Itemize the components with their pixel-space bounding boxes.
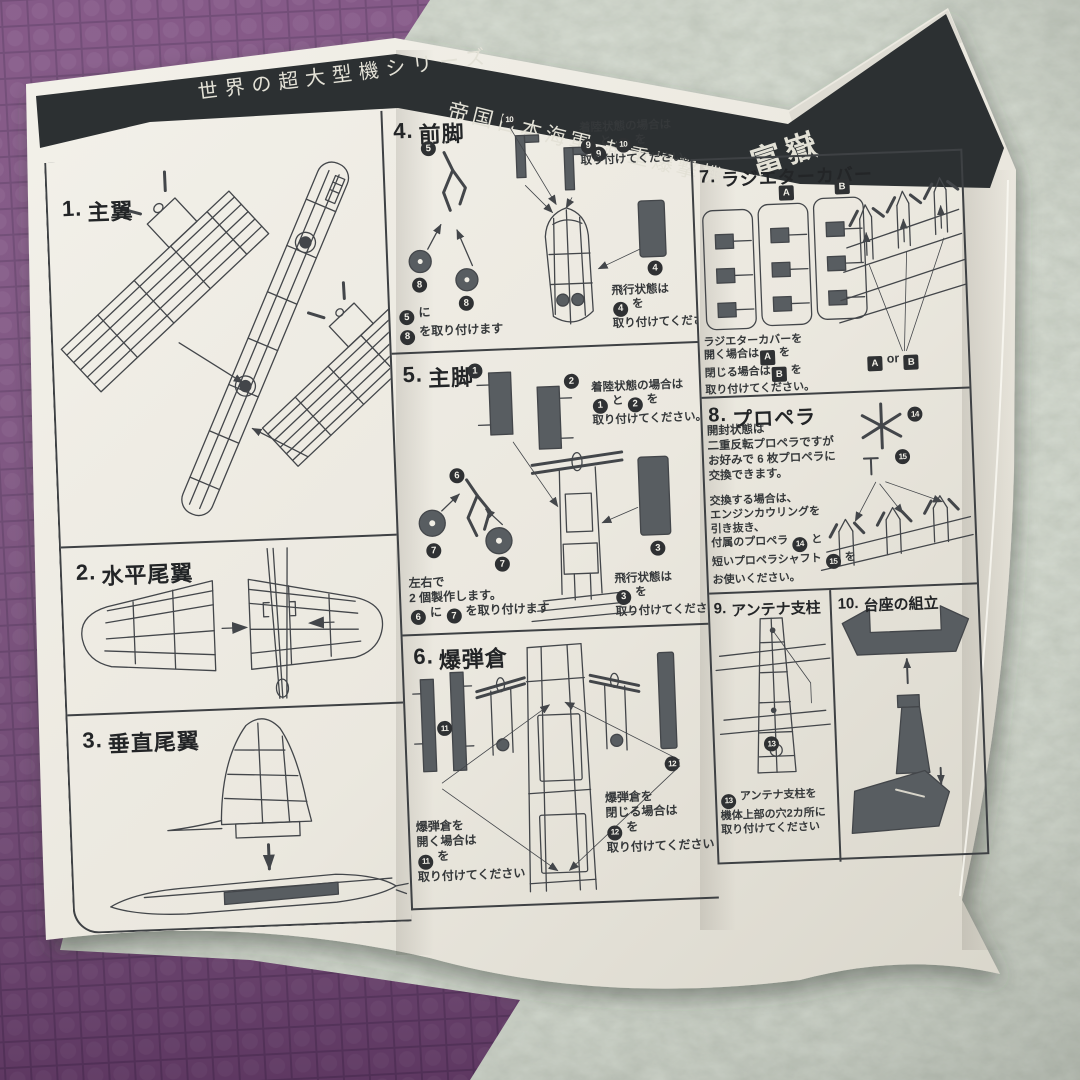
section-number: 9. [713,600,726,621]
photo-scene: 世界の超大型機シリーズ 帝国日本海軍 超重爆撃機 富嶽 1.主翼 [0,0,1080,1080]
row-antenna-stand: 9.アンテナ支柱 [709,582,987,866]
landing-note: 着陸状態の場合は1 と 2 を取り付けてください。 [591,377,697,428]
open-note: 爆弾倉を開く場合は11 を取り付けてください [416,816,526,885]
six-blade-propeller-drawing [862,403,901,448]
section-title: 2.水平尾翼 [75,555,194,591]
sprue-label-a: A [779,185,795,201]
section-main-wing: 1.主翼 [46,150,396,547]
section-radiator-cover: 7.ラジエターカバー [693,151,970,397]
a-or-b-label: A or B [866,350,920,371]
column-left: 1.主翼 [44,150,411,934]
attach-note: 5 に8 を取り付けます [398,302,504,344]
section-number: 7. [699,166,717,193]
section-title: 3.垂直尾翼 [82,723,201,759]
section-title: 6.爆弾倉 [413,640,509,676]
section-stand-assembly: 10.台座の組立 [831,584,987,861]
section-number: 1. [61,195,83,228]
section-antenna-strut: 9.アンテナ支柱 [709,590,841,866]
radiator-note: ラジエターカバーを開く場合はA を閉じる場合はB を取り付けてください。 [703,333,815,397]
section-vertical-tail: 3.垂直尾翼 [67,702,411,935]
landing-note: 着陸状態の場合は9 と 10 を取り付けてください。 [579,117,687,168]
make-note: 左右で2 個製作します。6 に 7 を取り付けます [408,571,550,626]
section-title: 5.主脚 [402,360,475,395]
propeller-note-1: 開封状態は二重反転プロペラですがお好みで 6 枚プロペラに交換できます。 [707,420,837,485]
flight-note: 飛行状態は3 を取り付けてください [614,568,708,619]
section-number: 4. [393,118,415,151]
section-title: 1.主翼 [61,194,134,229]
column-middle: 4.前脚 [380,99,718,910]
wing-left-drawing [46,150,269,392]
close-note: 爆弾倉を閉じる場合は12 を取り付けてください [605,787,715,856]
section-title: 10.台座の組立 [837,592,939,617]
section-nose-gear: 4.前脚 [382,99,697,353]
section-bomb-bay: 6.爆弾倉 [403,623,719,911]
antenna-note: 13 アンテナ支柱を機体上部の穴2カ所に取り付けてください [720,786,827,837]
flight-note: 飛行状態は4 を取り付けてください。 [611,280,697,331]
section-propeller: 8.プロペラ [702,387,977,593]
section-horizontal-tail: 2.水平尾翼 [61,534,403,715]
propeller-note-2: 交換する場合は、エンジンカウリングを引き抜き、付属のプロペラ 14 と短いプロペ… [709,489,856,588]
instruction-sheet: 1.主翼 [42,83,991,948]
column-right: 7.ラジエターカバー [690,149,989,865]
wing-right-drawing [227,263,397,466]
section-number: 2. [75,559,97,592]
sprue-label-b: B [834,179,850,195]
section-number: 6. [413,643,435,676]
section-number: 5. [402,362,424,395]
section-main-gear: 5.主脚 [392,341,709,635]
section-number: 10. [837,595,859,617]
stand-assembly-diagram [831,584,987,861]
fuselage-drawing [177,157,353,520]
section-title: 9.アンテナ支柱 [713,596,821,621]
section-number: 3. [82,727,104,760]
